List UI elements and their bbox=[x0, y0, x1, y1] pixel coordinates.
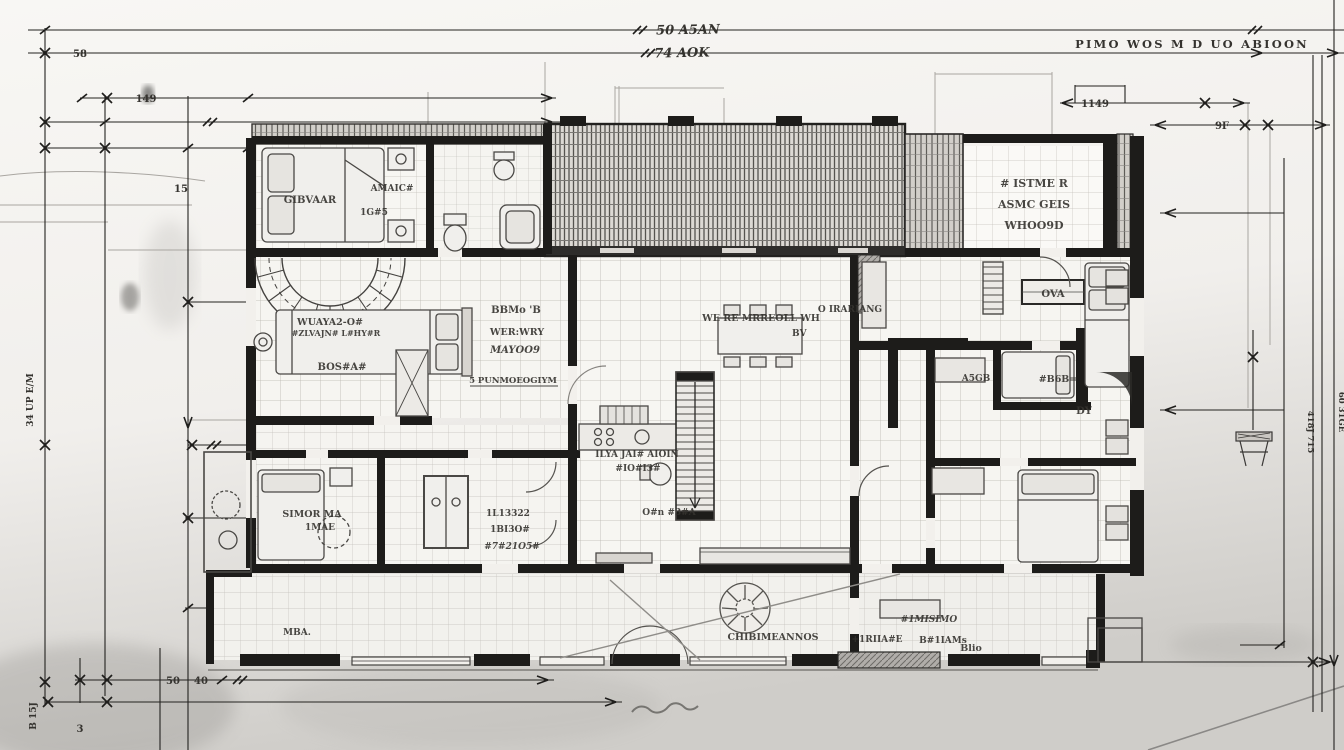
window-ova-label: OVA bbox=[1041, 289, 1065, 300]
study-label-3: #7#21O5# bbox=[484, 542, 540, 552]
study-label-1: 1L13322 bbox=[486, 509, 530, 519]
study-label-2: 1BI3O# bbox=[490, 525, 530, 535]
dim-140: 149 bbox=[136, 94, 157, 105]
floor-plan-sheet: 50 A5AN 74 AOK PIMO WOS M D UO ABIOON 58… bbox=[0, 0, 1344, 750]
room-top-mid-label-2: 1G#5 bbox=[360, 208, 388, 218]
dim-50: 50 bbox=[166, 676, 180, 687]
master-bed-label-3: BOS#A# bbox=[317, 362, 366, 373]
right-g45-label: A5GB bbox=[961, 374, 991, 384]
dim-15: 15 bbox=[174, 184, 188, 195]
dim-9f: 9F bbox=[1215, 121, 1229, 132]
dim-top-2: 74 AOK bbox=[654, 46, 710, 62]
bedroom3-label-1: SIMOR MA bbox=[282, 509, 342, 520]
center-label-3: MAYOO9 bbox=[489, 345, 540, 356]
master-bed-label-1: WUAYA2-O# bbox=[296, 317, 363, 328]
blio-label: Blio bbox=[960, 643, 982, 654]
dim-top-1: 50 A5AN bbox=[656, 22, 721, 38]
master-bed-label-2: #ZLVAJN# L#HY#R bbox=[292, 328, 381, 338]
dim-1149: 1149 bbox=[1081, 99, 1109, 110]
patio-label-2: +1RIIA#E bbox=[851, 635, 902, 645]
dim-58: 58 bbox=[73, 49, 87, 60]
center-label-4: 5 PUNMOEOGIYM bbox=[469, 376, 557, 386]
floor-plan-drawing: 50 A5AN 74 AOK PIMO WOS M D UO ABIOON 58… bbox=[0, 0, 1344, 750]
terrace-label: CHIBIMEANNOS bbox=[727, 632, 818, 643]
dim-right-vert-2: 60 31GE bbox=[1336, 392, 1344, 433]
room-top-mid-label-1: AMAIC# bbox=[370, 184, 414, 194]
right-room-label: #B6B= bbox=[1039, 374, 1078, 385]
dim-left-vert-1: 34 UP E/M bbox=[26, 373, 36, 427]
kitchen-label-3: O#n #3#A bbox=[642, 508, 696, 518]
dim-left-vert-2: B 15J bbox=[29, 702, 39, 730]
room-top-left-label: GIBVAAR bbox=[284, 195, 337, 206]
bedroom3-label-2: 1MAE bbox=[305, 523, 335, 533]
pergola-deck bbox=[545, 124, 905, 256]
room-top-right-label-1: # ISTME R bbox=[1000, 177, 1069, 190]
room-top-right-label-3: WHOO9D bbox=[1003, 219, 1064, 232]
center-right-label-3: O IRARIANG bbox=[818, 305, 882, 315]
kitchen-label-1: ILYA JAI# AIOIN bbox=[595, 450, 679, 460]
dim-40: 40 bbox=[194, 676, 208, 687]
center-right-label-2: BV bbox=[792, 329, 808, 339]
kitchen-label-2: #IO#I3# bbox=[615, 464, 660, 474]
center-right-label-1: WE RE MRREOLL WH bbox=[701, 313, 820, 324]
dim-left-vert-3: 3 bbox=[77, 724, 84, 735]
room-top-right-label-2: ASMC GEIS bbox=[997, 198, 1070, 211]
side-slat-band bbox=[905, 134, 963, 254]
staircase bbox=[676, 372, 714, 520]
title-note: PIMO WOS M D UO ABIOON bbox=[1075, 37, 1309, 51]
bottom-left-label: MBA. bbox=[283, 628, 311, 638]
dim-right-vert-1: 418J 715 bbox=[1305, 411, 1315, 454]
center-label-2: WER:WRY bbox=[489, 327, 545, 338]
hall-dy-label: DY bbox=[1076, 406, 1093, 417]
center-label-1: BBMo 'B bbox=[491, 305, 541, 316]
patio-label-1: #1MISIMO bbox=[901, 615, 958, 625]
